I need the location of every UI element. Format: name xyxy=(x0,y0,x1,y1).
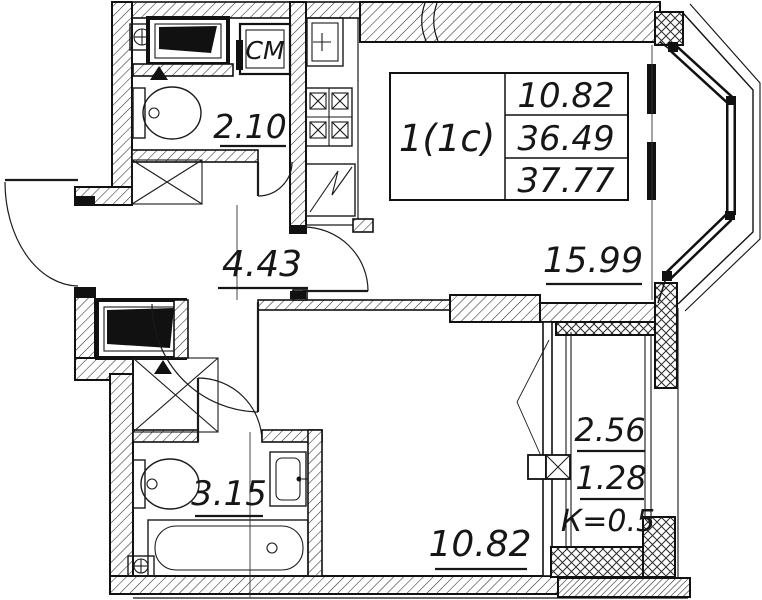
ventilation-shaft-mid xyxy=(97,300,188,358)
stove xyxy=(306,88,352,146)
living-balcony-wall xyxy=(540,303,657,322)
kitchen-sink xyxy=(307,18,343,66)
burner xyxy=(332,93,348,109)
room-label-hallway: 4.43 xyxy=(222,244,302,285)
window-joint xyxy=(725,211,735,220)
room-label-bathroom-bottom: 3.15 xyxy=(191,474,267,514)
bay-outline-outer xyxy=(685,4,760,311)
wardrobe xyxy=(133,358,218,432)
bathroom-top-door xyxy=(258,162,292,196)
room-label-balcony-coefficient: К=0.5 xyxy=(561,504,655,539)
floor-plan: СМ xyxy=(0,0,762,600)
room-label-bathroom-top: 2.10 xyxy=(213,107,286,146)
bathroom-bedroom-wall xyxy=(308,430,322,576)
entry-jamb-bottom xyxy=(75,288,95,298)
card-total-area: 37.77 xyxy=(517,161,615,201)
window-joint xyxy=(726,96,736,105)
hall-bedroom-wall-thick xyxy=(450,295,540,322)
room-label-balcony-reduced: 1.28 xyxy=(575,459,646,497)
bay-corner-top-block xyxy=(655,12,683,45)
window-joint xyxy=(668,42,678,52)
left-wall-bottom xyxy=(110,374,133,576)
card-area: 36.49 xyxy=(517,119,614,159)
kitchen-bathroom-wall xyxy=(290,2,306,233)
window-sill-block xyxy=(528,455,546,479)
kitchen-fixtures xyxy=(306,18,373,232)
counter-end-cap xyxy=(353,219,373,232)
entry-jamb-top xyxy=(75,196,95,205)
bay-window xyxy=(647,4,760,388)
top-wall-left xyxy=(112,2,360,18)
window-joint xyxy=(662,271,672,281)
bathroom-bottom xyxy=(128,452,308,576)
hall-bedroom-wall-thin xyxy=(258,300,450,310)
burner xyxy=(310,93,326,109)
refrigerator-niche xyxy=(306,164,355,216)
top-wall-right xyxy=(360,2,660,42)
washing-machine-label: СМ xyxy=(245,36,284,65)
balcony-bottom-wall xyxy=(551,547,643,577)
room-label-bedroom: 10.82 xyxy=(428,524,531,565)
radiator xyxy=(647,142,656,200)
card-living-area: 10.82 xyxy=(517,76,614,116)
bottom-wall-right xyxy=(558,578,690,597)
burner xyxy=(332,122,348,138)
apartment-card: 1(1с) 10.82 36.49 37.77 xyxy=(390,73,628,201)
entry-closet xyxy=(132,160,202,204)
apartment-type-label: 1(1с) xyxy=(399,117,495,160)
bay-corner-bottom-block xyxy=(655,283,677,388)
radiator xyxy=(647,64,656,114)
burner xyxy=(310,122,326,138)
shaft-hatch-band xyxy=(133,64,233,76)
washing-machine: СМ xyxy=(236,24,290,74)
bay-window-glazing xyxy=(662,42,736,281)
bathtub xyxy=(148,520,308,576)
toilet-top xyxy=(133,87,201,139)
ventilation-shaft xyxy=(148,18,228,64)
bay-inner-boundary xyxy=(658,42,728,303)
room-label-balcony-area: 2.56 xyxy=(574,411,645,449)
entrance-door xyxy=(5,180,78,286)
balcony-window-frame xyxy=(543,322,552,576)
bottom-wall-left xyxy=(110,576,558,594)
room-label-living-kitchen: 15.99 xyxy=(543,241,643,281)
toilet-bottom xyxy=(133,459,199,509)
left-wall-top xyxy=(112,2,132,187)
washbasin xyxy=(270,452,308,506)
